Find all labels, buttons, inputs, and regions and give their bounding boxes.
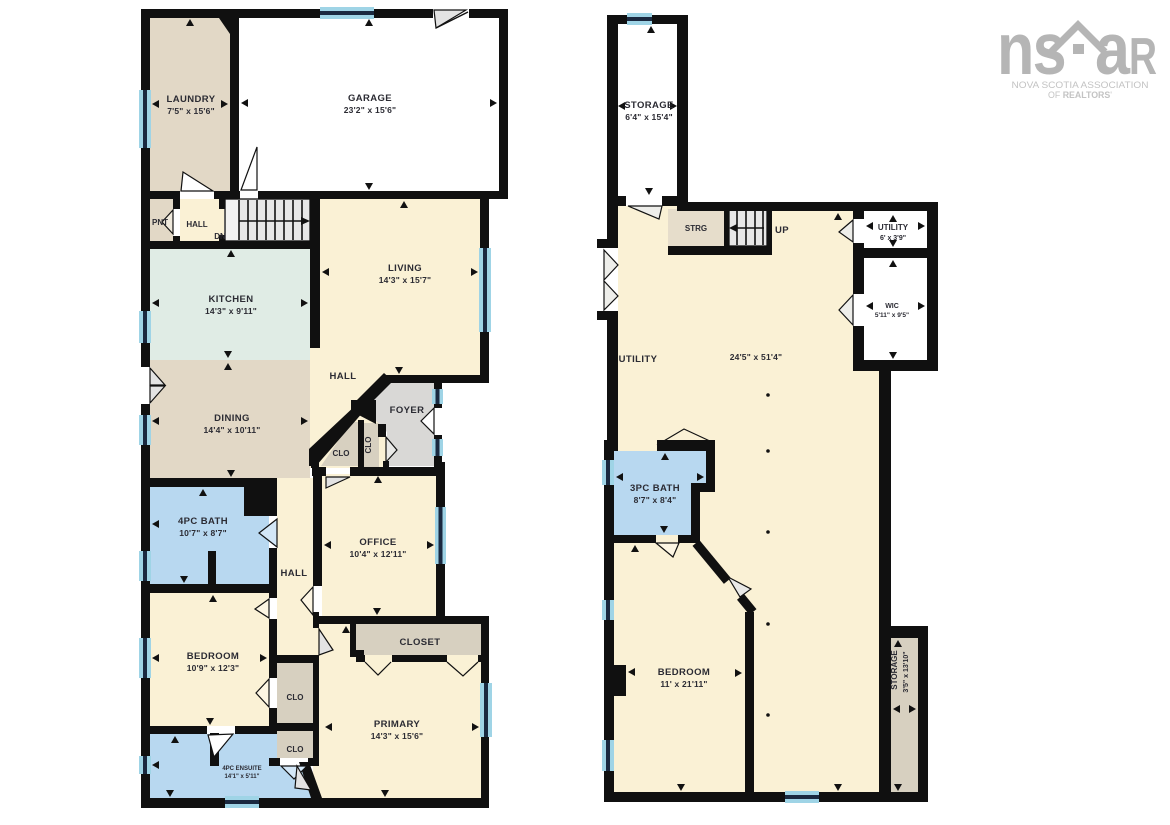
svg-text:OFFICE: OFFICE bbox=[359, 537, 396, 548]
svg-text:4PC ENSUITE: 4PC ENSUITE bbox=[222, 766, 261, 772]
svg-text:BEDROOM: BEDROOM bbox=[187, 651, 239, 662]
svg-text:HALL: HALL bbox=[330, 371, 357, 382]
svg-text:10'7" x 8'7": 10'7" x 8'7" bbox=[179, 528, 227, 538]
svg-text:14'3" x 15'7": 14'3" x 15'7" bbox=[379, 275, 432, 285]
svg-text:GARAGE: GARAGE bbox=[348, 93, 392, 104]
svg-text:UP: UP bbox=[775, 225, 789, 236]
svg-text:R: R bbox=[1129, 28, 1157, 86]
svg-text:HALL: HALL bbox=[186, 220, 207, 229]
svg-text:23'2" x 15'6": 23'2" x 15'6" bbox=[344, 105, 397, 115]
svg-text:DINING: DINING bbox=[214, 413, 250, 424]
svg-text:HALL: HALL bbox=[281, 568, 308, 579]
svg-text:3PC BATH: 3PC BATH bbox=[630, 483, 680, 494]
svg-text:7'5" x 15'6": 7'5" x 15'6" bbox=[167, 106, 215, 116]
svg-text:LAUNDRY: LAUNDRY bbox=[167, 94, 216, 105]
svg-text:UTILITY: UTILITY bbox=[619, 354, 658, 365]
svg-text:CLO: CLO bbox=[333, 449, 350, 458]
svg-text:PRIMARY: PRIMARY bbox=[374, 719, 421, 730]
svg-text:STORAGE: STORAGE bbox=[624, 100, 674, 111]
svg-text:PNT: PNT bbox=[152, 218, 168, 227]
svg-text:3'5" x 13'10": 3'5" x 13'10" bbox=[903, 651, 910, 692]
svg-text:14'3" x 9'11": 14'3" x 9'11" bbox=[205, 306, 257, 316]
svg-text:CLOSET: CLOSET bbox=[400, 637, 441, 648]
svg-text:10'9" x 12'3": 10'9" x 12'3" bbox=[187, 663, 240, 673]
svg-text:8'7" x 8'4": 8'7" x 8'4" bbox=[634, 495, 677, 505]
svg-text:4PC BATH: 4PC BATH bbox=[178, 516, 228, 527]
svg-text:6' x 3'9": 6' x 3'9" bbox=[880, 235, 906, 242]
svg-text:CLO: CLO bbox=[287, 693, 304, 702]
svg-text:CLO: CLO bbox=[364, 437, 373, 454]
svg-text:KITCHEN: KITCHEN bbox=[208, 294, 253, 305]
svg-text:DN: DN bbox=[214, 232, 226, 241]
svg-text:WIC: WIC bbox=[885, 303, 899, 310]
svg-text:LIVING: LIVING bbox=[388, 263, 422, 274]
svg-text:24'5" x 51'4": 24'5" x 51'4" bbox=[730, 352, 783, 362]
svg-text:CLO: CLO bbox=[287, 745, 304, 754]
svg-text:14'4" x 10'11": 14'4" x 10'11" bbox=[204, 425, 261, 435]
svg-text:14'3" x 15'6": 14'3" x 15'6" bbox=[371, 731, 424, 741]
svg-text:5'11" x 9'5": 5'11" x 9'5" bbox=[875, 312, 909, 319]
svg-text:a: a bbox=[1095, 9, 1131, 90]
svg-text:BEDROOM: BEDROOM bbox=[658, 667, 710, 678]
svg-text:14'1" x 5'11": 14'1" x 5'11" bbox=[225, 774, 260, 780]
svg-text:11' x 21'11": 11' x 21'11" bbox=[660, 679, 707, 689]
svg-text:6'4" x 15'4": 6'4" x 15'4" bbox=[625, 112, 673, 122]
svg-text:OF REALTORS': OF REALTORS' bbox=[1048, 90, 1112, 100]
svg-text:UTILITY: UTILITY bbox=[878, 223, 909, 232]
svg-text:FOYER: FOYER bbox=[390, 405, 425, 416]
svg-text:STORAGE: STORAGE bbox=[890, 650, 899, 690]
svg-text:10'4" x 12'11": 10'4" x 12'11" bbox=[350, 549, 407, 559]
svg-text:STRG: STRG bbox=[685, 224, 707, 233]
